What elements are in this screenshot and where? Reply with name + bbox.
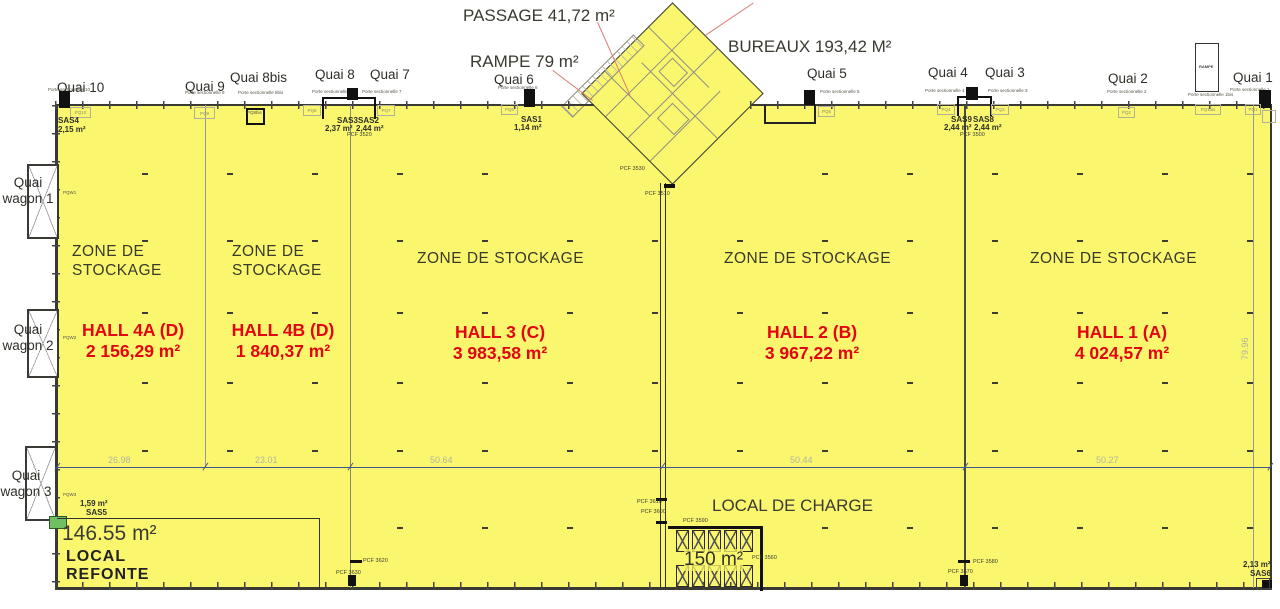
grid-tick [142,312,148,314]
warehouse-floor-plan: PASSAGE 41,72 m² RAMPE 79 m² BUREAUX 193… [0,0,1280,609]
quai-2-porte-label: Porte sectionnelle 2 [1107,89,1147,94]
sas9-sas8-box [957,96,992,116]
grid-tick [142,450,148,452]
quai-3-label: Quai 3 [985,65,1025,80]
quai-5-pit [764,105,816,124]
grid-tick [482,450,488,452]
grid-tick [907,382,913,384]
grid-tick [142,382,148,384]
grid-tick [822,312,828,314]
quai-9-pq: PQ9 [194,107,215,119]
pcf-3610-label: PCF 3610 [637,499,662,505]
grid-tick [737,382,743,384]
door-mark [960,575,968,586]
grid-tick [1077,240,1083,242]
grid-tick [312,382,318,384]
zone-hall4b-label: ZONE DESTOCKAGE [232,242,322,280]
grid-tick [567,382,573,384]
pcf-3560-label: PCF 3560 [752,555,777,561]
quai-4-pq: PQ4 [937,104,955,115]
grid-tick [1162,450,1168,452]
quai-7-label: Quai 7 [370,67,410,82]
grid-tick [1162,173,1168,175]
pcf-3500-label: PCF 3500 [960,132,985,138]
grid-tick [1162,382,1168,384]
grid-tick [1247,240,1253,242]
local-refonte-name: LOCALREFONTE [66,548,149,584]
quai-8bis-label: Quai 8bis [230,70,287,85]
quai-2-pq: PQ2 [1118,107,1135,118]
grid-tick [1162,312,1168,314]
grid-tick [397,312,403,314]
quai-1bis-porte-label: Porte sectionnelle 1bis [1188,92,1233,97]
grid-tick [652,312,658,314]
grid-tick [907,173,913,175]
quai-7-porte-label: Porte sectionnelle 7 [362,89,402,94]
door-mark [656,521,667,524]
dimension-line [57,467,1270,468]
door-mark [348,575,356,586]
grid-tick [1247,382,1253,384]
grid-tick [1247,173,1253,175]
grid-tick [652,450,658,452]
grid-tick [822,450,828,452]
grid-tick [1162,240,1168,242]
grid-tick [397,450,403,452]
dim-hall4a: 26.98 [108,455,131,465]
grid-tick [992,527,998,529]
quai-7-pq: PQ7 [377,105,395,116]
dim-hall1: 50.27 [1096,455,1119,465]
local-charge-title: LOCAL DE CHARGE [712,496,873,516]
grid-tick [992,312,998,314]
grid-tick [312,450,318,452]
hall-2-title: HALL 2 (B)3 967,22 m² [702,322,922,364]
grid-tick [1077,382,1083,384]
pcf-3590-label: PCF 3590 [683,518,708,524]
pcf-3580-label: PCF 3580 [973,559,998,565]
quai-5-label: Quai 5 [807,66,847,81]
grid-tick [822,173,828,175]
grid-tick [227,312,233,314]
hall-1-title: HALL 1 (A)4 024,57 m² [1012,322,1232,364]
wall-hall2-1 [964,105,966,588]
pcf-3510-label: PCF 3510 [645,191,670,197]
zone-hall4a-label: ZONE DESTOCKAGE [72,242,162,280]
zone-hall2-label: ZONE DE STOCKAGE [724,249,891,268]
pcf-3530-label: PCF 3530 [620,166,645,172]
local-charge-area: 150 m² [684,549,743,571]
grid-tick [312,312,318,314]
grid-tick [227,240,233,242]
grid-tick [567,450,573,452]
wall-hall4a-4b [205,105,206,467]
grid-tick [907,527,913,529]
grid-tick [1077,527,1083,529]
grid-tick [822,527,828,529]
right-wall [1270,105,1272,590]
grid-tick [992,382,998,384]
door-mark [664,184,675,188]
grid-tick [482,312,488,314]
grid-tick [907,450,913,452]
quai-10-dock [59,91,70,108]
grid-tick [142,240,148,242]
door-mark [958,560,970,563]
quai-wagon-1-tag: PQW1 [63,190,76,195]
grid-tick [397,173,403,175]
quai-4-label: Quai 4 [928,65,968,80]
grid-tick [907,240,913,242]
grid-tick [227,450,233,452]
quai-wagon-3-label: Quaiwagon 3 [0,468,52,500]
quai-5-pq: PQ5 [818,106,835,117]
grid-tick [567,527,573,529]
grid-tick [312,240,318,242]
grid-tick [227,173,233,175]
grid-tick [1077,450,1083,452]
pcf-3620-label: PCF 3620 [363,558,388,564]
quai-1-sas-box [1262,110,1276,123]
dimension-line-vertical [1253,105,1254,588]
pcf-3570-label: PCF 3570 [948,569,973,575]
grid-tick [992,240,998,242]
zone-hall1-label: ZONE DE STOCKAGE [1030,249,1197,268]
dim-building-height: 79.96 [1240,337,1250,360]
grid-tick [737,312,743,314]
quai-1-pq: PQ1 [1245,104,1261,115]
quai-8bis-porte-label: Porte sectionnelle 8bis [238,90,283,95]
grid-tick [652,382,658,384]
grid-tick [482,527,488,529]
quai-6-dock [524,89,535,107]
quai-wagon-3-tag: PQW3 [63,492,76,497]
grid-tick [567,240,573,242]
dim-hall3: 50.64 [430,455,453,465]
quai-8-porte-label: Porte sectionnelle 8 [312,89,352,94]
grid-tick [142,173,148,175]
rampe-label: RAMPE 79 m² [470,52,579,72]
quai-3-pq: PQ3 [991,104,1009,115]
pcf-3630-label: PCF 3630 [336,570,361,576]
grid-tick [652,240,658,242]
grid-tick [227,382,233,384]
grid-tick [822,382,828,384]
pcf-3520-label: PCF 3520 [347,132,372,138]
grid-tick [1247,450,1253,452]
dim-hall4b: 23.01 [255,455,278,465]
office-room [657,103,690,136]
grid-tick [397,527,403,529]
sas1-area: 1,14 m² [514,124,542,133]
quai-wagon-1-label: Quaiwagon 1 [2,175,54,207]
grid-tick [737,240,743,242]
pcf-3600-label: PCF 3600 [641,509,666,515]
quai-8bis-pq: PQ8bis [247,110,262,115]
passage-label: PASSAGE 41,72 m² [463,6,615,26]
grid-tick [482,173,488,175]
sas4-area: 2,15 m² [58,126,86,135]
grid-tick [992,450,998,452]
sas6-box [1256,578,1270,589]
grid-tick [737,450,743,452]
grid-tick [567,312,573,314]
hall-3-title: HALL 3 (C)3 983,58 m² [390,322,610,364]
grid-tick [907,312,913,314]
quai-3-porte-label: Porte sectionnelle 3 [988,88,1028,93]
quai-2-label: Quai 2 [1108,71,1148,86]
bureaux-label: BUREAUX 193,42 M² [728,37,891,57]
wall-hall3-2 [660,183,666,588]
quai-4-porte-label: Porte sectionnelle 4 [925,88,965,93]
quai-6-pq: PQ6 [501,104,518,115]
leader-line [705,3,754,36]
zone-hall3-label: ZONE DE STOCKAGE [417,249,584,268]
grid-tick [822,240,828,242]
door-mark [350,560,362,563]
quai-5-porte-label: Porte sectionnelle 5 [820,89,860,94]
quai-1-label: Quai 1 [1233,70,1273,85]
grid-tick [312,173,318,175]
quai-1bis-pq: PQ1bis [1195,104,1221,115]
grid-tick [482,240,488,242]
quai-8-label: Quai 8 [315,67,355,82]
quai-8-pq: PQ8 [303,105,321,116]
grid-tick [482,382,488,384]
grid-tick [1077,173,1083,175]
grid-tick [1162,527,1168,529]
grid-tick [992,173,998,175]
local-refonte-area: 146.55 m² [62,522,157,546]
quai-1bis-ramp-label: RAMPE [1199,64,1213,69]
grid-tick [1247,527,1253,529]
grid-tick [397,382,403,384]
grid-tick [1247,312,1253,314]
sas5-name: SAS5 [86,509,107,518]
quai-5-dock [804,90,815,105]
grid-tick [1077,312,1083,314]
hall-4b-title: HALL 4B (D)1 840,37 m² [173,320,393,362]
dim-hall2: 50.44 [790,455,813,465]
grid-tick [397,240,403,242]
quai-9-porte-label: Porte sectionnelle 9 [185,90,225,95]
